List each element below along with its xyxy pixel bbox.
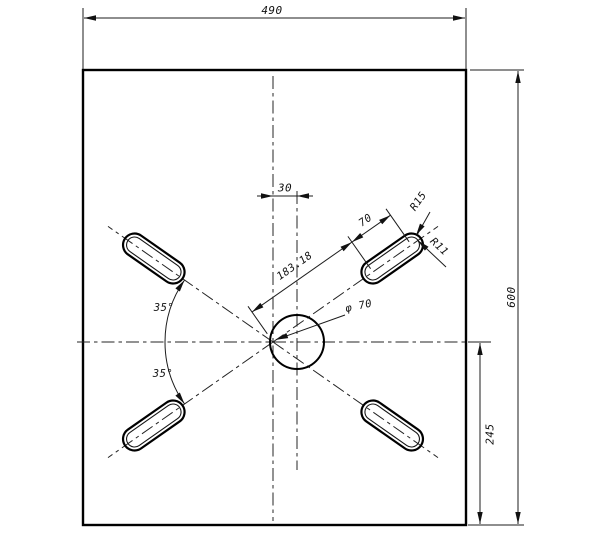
extension-line (386, 209, 409, 242)
dim-plate-width: 490 (83, 4, 466, 69)
slot-upper-right (357, 229, 428, 288)
dim-hole-center-offset-label: 30 (277, 182, 292, 195)
hole-diameter-label: φ 70 (344, 298, 373, 315)
dim-hole-center-offset: 30 (257, 182, 313, 199)
technical-drawing: 490 600 245 30 183.18 70 (0, 0, 600, 550)
slot-outer-contour (119, 229, 190, 288)
slot-outer-contour (119, 396, 190, 455)
arrowhead (261, 193, 273, 198)
dim-hole-bottom-offset: 245 (468, 342, 497, 524)
arrowhead (477, 512, 482, 524)
dim-slot-length-label: 70 (357, 212, 375, 230)
dim-slot-distance: 183.18 (248, 236, 371, 333)
arrowhead (453, 15, 465, 20)
dim-plate-height: 600 (468, 70, 524, 525)
axis-upper-left (108, 226, 273, 342)
slot-lower-left (119, 396, 190, 455)
slot-outer-radius-label: R15 (408, 189, 430, 213)
arrowhead (515, 512, 520, 524)
arrowhead (515, 71, 520, 83)
axis-upper-right (273, 226, 438, 342)
axis-lower-right (273, 342, 438, 458)
slot-outer-contour (357, 396, 428, 455)
extension-line (248, 306, 267, 334)
dim-plate-width-label: 490 (261, 4, 282, 17)
drawing-canvas: 490 600 245 30 183.18 70 (0, 0, 600, 550)
slot-inner-radius-label: R11 (427, 235, 450, 258)
extension-line (348, 236, 371, 268)
dim-slot-distance-label: 183.18 (275, 249, 315, 282)
angle-upper-label: 35° (153, 302, 174, 314)
plate-outline (83, 70, 466, 525)
angle-lower-label: 35° (152, 368, 173, 380)
callout-slot-outer-radius: R15 (408, 189, 430, 236)
dim-hole-bottom-offset-label: 245 (484, 423, 497, 444)
arrowhead (275, 333, 288, 342)
slot-lower-right (357, 396, 428, 455)
slot-outer-contour (357, 229, 428, 288)
arrowhead (84, 15, 96, 20)
dim-plate-height-label: 600 (505, 286, 518, 307)
arrowhead (297, 193, 309, 198)
arrowhead (477, 343, 482, 355)
axis-lower-left (108, 342, 273, 458)
slot-upper-left (119, 229, 190, 288)
